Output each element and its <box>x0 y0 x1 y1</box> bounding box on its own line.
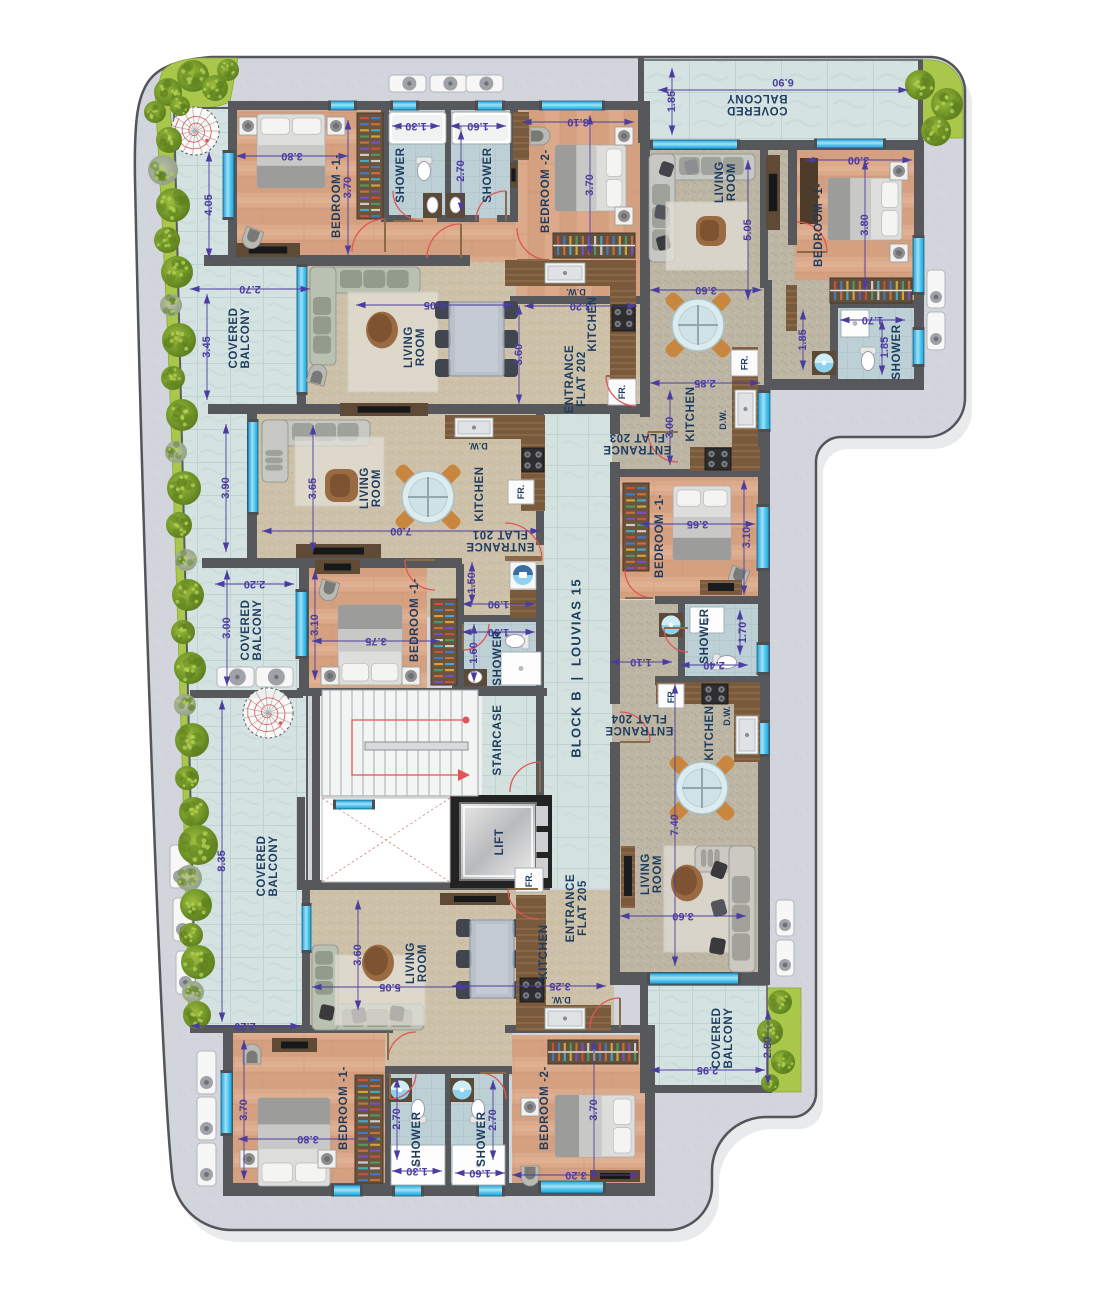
svg-text:3.10: 3.10 <box>567 116 588 128</box>
svg-text:D.W.: D.W. <box>722 706 732 726</box>
svg-text:3.80: 3.80 <box>281 150 302 162</box>
svg-text:3.10: 3.10 <box>309 614 321 635</box>
svg-text:ENTRANCEFLAT 205: ENTRANCEFLAT 205 <box>565 874 589 943</box>
svg-text:FR.: FR. <box>524 873 534 888</box>
svg-text:3.65: 3.65 <box>687 518 708 530</box>
svg-text:7.00: 7.00 <box>390 525 411 537</box>
svg-text:FR.: FR. <box>516 485 526 500</box>
svg-text:2.70: 2.70 <box>455 160 467 181</box>
svg-text:3.45: 3.45 <box>201 336 213 357</box>
svg-text:ENTRANCEFLAT 202: ENTRANCEFLAT 202 <box>564 345 588 414</box>
svg-text:ENTRANCEFLAT 204: ENTRANCEFLAT 204 <box>605 712 674 736</box>
svg-text:3.10: 3.10 <box>741 527 753 548</box>
svg-text:1.50: 1.50 <box>466 572 478 593</box>
svg-text:5.05: 5.05 <box>424 299 445 311</box>
svg-text:KITCHEN: KITCHEN <box>538 924 550 979</box>
svg-text:3.65: 3.65 <box>307 478 319 499</box>
svg-text:BEDROOM -1-: BEDROOM -1- <box>331 154 343 238</box>
svg-text:LIVINGROOM: LIVINGROOM <box>359 467 383 509</box>
svg-text:COVEREDBALCONY: COVEREDBALCONY <box>711 1007 735 1068</box>
svg-text:1.60: 1.60 <box>469 1167 490 1179</box>
svg-text:BEDROOM -1-: BEDROOM -1- <box>654 494 666 578</box>
svg-text:D.W.: D.W. <box>718 410 728 430</box>
svg-text:LIVINGROOM: LIVINGROOM <box>403 326 427 368</box>
svg-text:2.20: 2.20 <box>234 1020 255 1032</box>
svg-text:1.70: 1.70 <box>737 622 749 643</box>
svg-text:3.20: 3.20 <box>565 1169 586 1181</box>
svg-text:D.W.: D.W. <box>551 995 571 1005</box>
svg-text:3.25: 3.25 <box>549 980 570 992</box>
svg-text:KITCHEN: KITCHEN <box>685 386 697 441</box>
svg-text:5.05: 5.05 <box>742 219 754 240</box>
svg-text:3.70: 3.70 <box>588 1099 600 1120</box>
svg-text:SHOWER: SHOWER <box>492 630 504 685</box>
svg-text:3.80: 3.80 <box>297 1133 318 1145</box>
svg-text:3.80: 3.80 <box>859 214 871 235</box>
svg-text:LIVINGROOM: LIVINGROOM <box>714 161 738 203</box>
svg-text:ENTRANCEFLAT 201: ENTRANCEFLAT 201 <box>466 528 535 552</box>
svg-text:BEDROOM -1-: BEDROOM -1- <box>813 183 825 267</box>
svg-text:COVEREDBALCONY: COVEREDBALCONY <box>228 307 252 368</box>
svg-text:BEDROOM -1-: BEDROOM -1- <box>409 578 421 662</box>
svg-text:3.00: 3.00 <box>221 617 233 638</box>
svg-text:3.70: 3.70 <box>584 174 596 195</box>
svg-text:SHOWER: SHOWER <box>891 324 903 379</box>
svg-text:KITCHEN: KITCHEN <box>704 705 716 760</box>
svg-text:3.75: 3.75 <box>365 635 386 647</box>
svg-text:1.60: 1.60 <box>467 120 488 132</box>
svg-text:SHOWER: SHOWER <box>395 147 407 202</box>
svg-text:1.85: 1.85 <box>879 337 891 358</box>
svg-text:D.W.: D.W. <box>566 287 586 297</box>
svg-text:SHOWER: SHOWER <box>476 1111 488 1166</box>
svg-text:2.70: 2.70 <box>239 283 260 295</box>
svg-text:5.05: 5.05 <box>379 981 400 993</box>
svg-text:1.30: 1.30 <box>405 120 426 132</box>
svg-text:LIFT: LIFT <box>494 829 506 856</box>
svg-text:2.85: 2.85 <box>694 377 715 389</box>
svg-text:4.05: 4.05 <box>203 194 215 215</box>
svg-text:D.W.: D.W. <box>468 441 488 451</box>
svg-text:2.70: 2.70 <box>391 1108 403 1129</box>
svg-text:BEDROOM -2-: BEDROOM -2- <box>539 1066 551 1150</box>
svg-text:7.40: 7.40 <box>669 814 681 835</box>
svg-text:3.70: 3.70 <box>342 177 354 198</box>
svg-text:3.60: 3.60 <box>695 284 716 296</box>
svg-text:STAIRCASE: STAIRCASE <box>492 705 504 776</box>
svg-text:1.90: 1.90 <box>488 598 509 610</box>
svg-text:1.10: 1.10 <box>630 656 651 668</box>
svg-text:1.70: 1.70 <box>862 314 883 326</box>
svg-text:8.35: 8.35 <box>216 850 228 871</box>
svg-text:1.60: 1.60 <box>468 642 480 663</box>
svg-text:FR.: FR. <box>740 356 750 371</box>
svg-text:3.60: 3.60 <box>352 944 364 965</box>
svg-text:2.20: 2.20 <box>244 578 265 590</box>
svg-text:3.90: 3.90 <box>220 477 232 498</box>
svg-text:BEDROOM -1-: BEDROOM -1- <box>338 1066 350 1150</box>
svg-text:SHOWER: SHOWER <box>411 1111 423 1166</box>
svg-text:BLOCK B | LOUVIAS 15: BLOCK B | LOUVIAS 15 <box>569 578 584 758</box>
svg-text:LIVINGROOM: LIVINGROOM <box>405 942 429 984</box>
svg-text:KITCHEN: KITCHEN <box>587 296 599 351</box>
svg-text:COVEREDBALCONY: COVEREDBALCONY <box>240 599 264 660</box>
svg-text:LIVINGROOM: LIVINGROOM <box>640 853 664 895</box>
svg-text:2.70: 2.70 <box>487 1109 499 1130</box>
svg-text:BEDROOM -2-: BEDROOM -2- <box>540 149 552 233</box>
svg-text:2.80: 2.80 <box>762 1037 774 1058</box>
svg-text:COVEREDBALCONY: COVEREDBALCONY <box>726 92 787 116</box>
svg-text:3.70: 3.70 <box>238 1099 250 1120</box>
svg-text:COVEREDBALCONY: COVEREDBALCONY <box>256 835 280 896</box>
svg-text:SHOWER: SHOWER <box>699 608 711 663</box>
svg-text:1.85: 1.85 <box>666 91 678 112</box>
svg-text:FR.: FR. <box>617 385 627 400</box>
svg-text:1.85: 1.85 <box>797 329 809 350</box>
svg-text:ENTRANCEFLAT 203: ENTRANCEFLAT 203 <box>603 431 672 455</box>
svg-text:3.60: 3.60 <box>672 910 693 922</box>
svg-text:3.60: 3.60 <box>513 344 525 365</box>
svg-text:SHOWER: SHOWER <box>482 147 494 202</box>
svg-text:KITCHEN: KITCHEN <box>474 466 486 521</box>
svg-text:6.90: 6.90 <box>772 76 793 88</box>
